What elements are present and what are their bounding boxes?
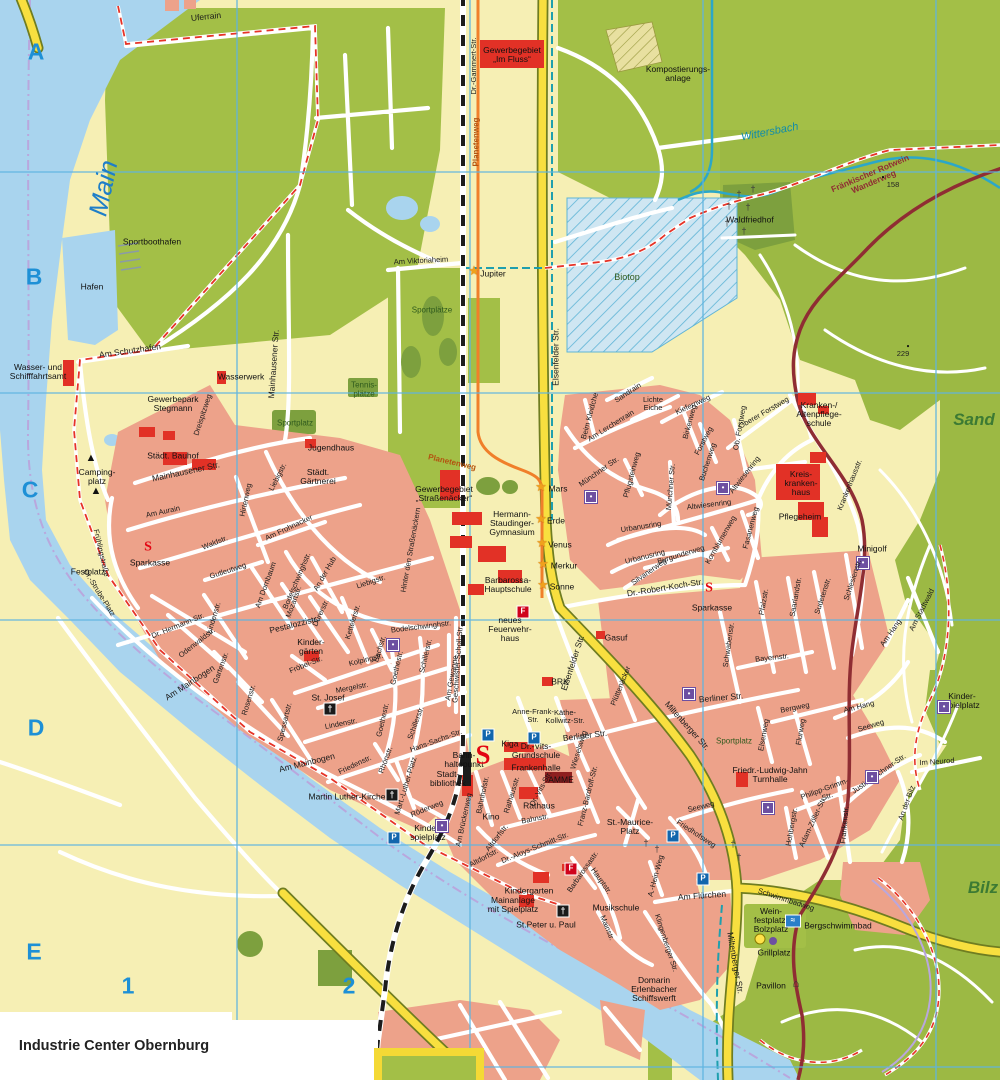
grid-col-2: 2 — [343, 974, 356, 999]
grid-row-b: B — [26, 265, 43, 290]
map-label: Barbarossastr. — [566, 850, 600, 894]
map-label: Urbanusring — [624, 548, 666, 566]
map-icon: † — [730, 840, 735, 850]
map-label: Schwimmbadweg — [757, 887, 815, 913]
area-sand-label: Sand — [953, 411, 995, 429]
map-label: Gewerbegebiet „Straßenäcker“ — [415, 485, 473, 503]
map-label: Uferrain — [190, 11, 221, 23]
map-label: Friedhofsweg — [675, 818, 717, 849]
map-label: Pflugsteinweg — [622, 451, 642, 498]
map-label: Minigolf — [857, 544, 886, 553]
map-label: Im Neurod — [919, 757, 954, 768]
sparkasse-main-icon: S — [475, 740, 490, 769]
map-label: Röderweg — [410, 799, 445, 819]
map-label: Altdorfstr. — [468, 847, 500, 869]
river-main-label: Main — [83, 158, 122, 219]
kindergarten-icon: • — [683, 688, 695, 700]
map-label: Am Flürchen — [678, 890, 727, 903]
sparkasse-icon: S — [705, 580, 713, 595]
map-label: Hinter den Straßenäckern — [400, 507, 423, 593]
map-label: Kindergarten — [505, 886, 554, 895]
map-icon: † — [745, 203, 750, 213]
parking-icon: P — [667, 830, 680, 843]
map-label: BRK — [551, 677, 568, 686]
map-label: Münchner Str. — [578, 455, 621, 488]
grillplatz-icon — [769, 937, 777, 945]
map-label: Am Mainbogen — [278, 752, 336, 775]
map-label: Rathaus — [523, 801, 555, 810]
map-label: Geschwister-Scholl-Str. — [451, 625, 465, 703]
map-label: Pestalozzistr. — [269, 614, 320, 635]
map-label: Altdorfstr. — [484, 823, 510, 853]
map-label: Kettelerstr. — [344, 604, 362, 641]
map-label: Klingenberger Str. — [653, 913, 679, 973]
city-map[interactable]: ABCDE12MainUferrainDr.-Gammert-Str.Gewer… — [0, 0, 1000, 1080]
map-label: An der Bilz — [897, 785, 917, 822]
map-label: Rathausstr. — [503, 776, 522, 815]
map-label: Fränkischer Rotwein Wanderweg — [810, 145, 935, 212]
map-label: Seeweg — [687, 800, 715, 814]
map-label: Miltenberger Str. — [663, 700, 712, 752]
map-label: Am Dornbaum — [254, 561, 278, 609]
map-label: Sportplatz — [277, 420, 313, 429]
map-label: Merkur — [551, 561, 577, 570]
map-label: Am Aurain — [145, 504, 181, 519]
map-label: Dr.-Strube-Platz — [81, 568, 116, 618]
map-label: Seeweg — [857, 718, 885, 734]
kindergarten-icon: • — [762, 802, 774, 814]
map-label: Burgunderweg — [656, 544, 705, 566]
map-label: Birkenweg — [682, 404, 699, 440]
minigolf-icon: • — [857, 557, 869, 569]
map-label: Kinder- spielplatz — [410, 824, 445, 842]
map-label: Sudetenstr. — [813, 577, 832, 616]
map-label: Sportboothafen — [123, 237, 181, 246]
map-label: Schillerstr. — [418, 638, 434, 674]
map-icon: ● — [881, 175, 884, 180]
map-label: Bayernstr. — [755, 652, 789, 664]
map-label: Mozartstr. — [285, 585, 304, 619]
map-label: Am Stadtwald — [908, 588, 936, 633]
grillplatz-icon — [755, 934, 766, 945]
map-label: Am Schutzhafen — [98, 342, 161, 360]
map-label: Oberer Forstweg — [738, 395, 791, 430]
map-label: Hafen — [81, 282, 104, 291]
map-label: Hohbergstr. — [785, 807, 800, 847]
map-label: Am Viktoriaheim — [394, 256, 449, 267]
campsite-icon: ▲ — [86, 453, 97, 465]
map-label: Kinder- gärten — [297, 638, 324, 656]
map-icon: † — [726, 202, 731, 212]
map-label: Fasanenweg — [742, 506, 761, 550]
map-label: Gasuf — [605, 633, 628, 642]
map-label: Frankenhalle — [511, 763, 560, 772]
map-label: Wein- festplatz, Bolzplatz — [754, 907, 789, 935]
map-label: Dr. Hermann-Str. — [150, 612, 205, 641]
map-label: Am Hang — [879, 618, 904, 648]
map-label: Wasserwerk — [218, 372, 264, 381]
map-label: Am Hang — [843, 699, 875, 714]
grid-row-c: C — [22, 478, 39, 503]
map-label: Am Brückenweg — [454, 792, 473, 847]
map-label: Schwabenstr. — [722, 622, 736, 668]
map-label: Pflegeheim — [779, 512, 822, 521]
map-label: Frühlingstraße — [92, 529, 111, 578]
map-label: Bergweg — [780, 701, 811, 715]
grid-row-a: A — [28, 40, 45, 65]
map-label: Plüttenäcker — [609, 665, 632, 707]
map-label: Erde — [547, 516, 565, 525]
campsite-icon: ▲ — [91, 486, 102, 498]
map-label: Waldfriedhof — [726, 215, 773, 224]
map-label: Am Mainbogen — [164, 664, 217, 703]
parking-icon: P — [388, 832, 401, 845]
map-label: Am Gewanne — [444, 655, 460, 701]
grid-row-d: D — [28, 716, 45, 741]
map-label: Rosenstr. — [240, 684, 257, 717]
map-label: Am Lerchenrain — [586, 409, 635, 444]
parking-icon: P — [697, 873, 710, 886]
map-label: Planetenweg — [473, 118, 482, 167]
map-label: Martin Luther-Kirche — [308, 792, 385, 801]
map-label: Camping- platz — [79, 468, 116, 486]
map-label: Städt. Gärtnerei — [300, 468, 335, 486]
map-label: Liebigstr. — [355, 574, 386, 591]
map-label: Schlesienstr. — [843, 559, 864, 602]
map-icon: ● — [906, 344, 909, 349]
planet-jupiter-icon: ★ — [468, 264, 480, 278]
map-label: Mainhausener Str. — [267, 329, 281, 398]
map-label: Kornblumenweg — [704, 515, 738, 566]
map-label: Pfalzstr. — [758, 588, 771, 616]
map-label: Elsenweg — [757, 718, 771, 751]
map-label: Berliner Str. — [698, 691, 743, 704]
map-label: Gewerbepark Stegmann — [147, 395, 198, 413]
map-label: Dreispitzweg — [193, 393, 214, 436]
map-label: Berliner Str. — [562, 729, 607, 744]
kindergarten-icon: • — [717, 482, 729, 494]
map-label: Mars — [549, 484, 568, 493]
map-label: Barbarossa- Hauptschule — [484, 576, 531, 594]
map-label: Franz-Bardroff-Str. — [577, 765, 600, 827]
map-label: Domarin Erlenbacher Schiffswerft — [631, 976, 677, 1004]
playground-icon: • — [938, 701, 950, 713]
map-label: Beim Kleidche — [580, 392, 600, 440]
map-label: Kiga — [501, 739, 518, 748]
map-label: Goethestr. — [389, 650, 405, 686]
map-label: Lichte Eiche — [643, 396, 663, 412]
map-label: Goethestr. — [375, 702, 391, 738]
map-label: Ob. Forstweg — [732, 405, 748, 451]
map-label: Grillplatz — [757, 948, 790, 957]
map-label: Bodelschwinghstr. — [281, 552, 312, 611]
map-label: St. Josef — [311, 693, 344, 702]
map-label: Hauptstr. — [589, 866, 613, 895]
map-label: neues Feuerwehr- haus — [488, 616, 531, 644]
map-label: Am Frohnacker — [264, 513, 314, 542]
map-label: Gartenstr. — [212, 651, 231, 685]
map-label: Lindenstr. — [324, 717, 357, 731]
kindergarten-icon: • — [387, 639, 399, 651]
playground-icon: • — [436, 820, 448, 832]
map-label: Mergelstr. — [335, 681, 369, 695]
parking-icon: P — [482, 729, 495, 742]
fire-station-icon: F — [565, 863, 578, 876]
map-label: Frankenstr. — [839, 806, 850, 844]
map-label: Tennis- plätze — [351, 381, 377, 398]
planet-merkur-icon: ★ — [537, 557, 549, 571]
map-label: Silvanerweg — [630, 557, 668, 587]
map-label: Buchenweg — [698, 442, 718, 482]
map-label: Hermann- Staudinger- Gymnasium — [489, 510, 534, 538]
map-icon: † — [736, 190, 741, 200]
map-label: Städt. Bauhof — [147, 451, 199, 460]
map-label: Kinder- spielplatz — [944, 692, 979, 710]
map-label: Justin-Kirchner-Str. — [851, 752, 908, 795]
map-label: Dr.-Vits- Grundschule — [512, 742, 560, 760]
map-label: Urbanusring — [620, 520, 662, 534]
map-label: Philipp-Grimm- Str. — [800, 777, 853, 809]
planet-venus-icon: ★ — [536, 536, 548, 550]
map-label: Altwiesenring — [728, 455, 762, 495]
map-icon: † — [654, 845, 659, 855]
map-label: Biotop — [614, 273, 640, 283]
map-label: Festplatz — [71, 567, 106, 576]
map-label: Kranken-/ Altenpflege- schule — [796, 401, 841, 429]
map-icon: † — [736, 853, 741, 863]
planet-erde-icon: ★ — [535, 512, 547, 526]
map-label: Wieselsweg — [569, 730, 588, 771]
map-label: Wittersbach — [740, 122, 799, 145]
map-label: Friedenstr. — [337, 754, 373, 776]
map-label: A.-Hein-Weg — [647, 854, 666, 897]
map-label: Forstweg — [693, 425, 715, 456]
sparkasse-icon: S — [144, 539, 152, 554]
map-label: AMME — [548, 775, 574, 784]
parking-icon: P — [528, 732, 541, 745]
map-label: Anne-Frank- Str. — [512, 708, 554, 724]
map-label: Dr.-Aloys-Schmitt-Str. — [500, 831, 569, 865]
map-label: Dr.-Vits-Str. — [528, 770, 553, 808]
map-label: Liebigstr. — [268, 462, 289, 492]
map-label: Planetenweg — [427, 453, 477, 472]
map-label: 158 — [887, 181, 900, 189]
map-label: Dürerstr. — [311, 598, 330, 627]
map-label: Adam-Zöller-Str. — [798, 796, 828, 849]
map-label: Jugendhaus — [308, 443, 354, 452]
area-bilz-label: Bilz — [968, 879, 998, 897]
map-icon: † — [741, 227, 746, 237]
map-label: Bodelschwinghstr. — [391, 619, 452, 634]
church-icon: † — [557, 905, 570, 918]
map-icon: † — [724, 219, 729, 229]
map-label: Münchner Str. — [665, 463, 677, 510]
map-label: Friedr.-Ludwig-Jahn Turnhalle — [732, 766, 807, 784]
map-label: Kiefernweg — [674, 393, 711, 416]
map-label: Bahnhofstr. — [475, 776, 491, 815]
map-label: Flurweg — [795, 718, 808, 746]
map-label: Schillerstr. — [406, 705, 425, 740]
kindergarten-icon: • — [585, 491, 597, 503]
map-label: Mainstr. — [598, 914, 615, 941]
kindergarten-icon: • — [866, 771, 878, 783]
inset-title: Industrie Center Obernburg — [19, 1039, 209, 1055]
map-label: Käthe- Kollwitz-Str. — [545, 709, 584, 725]
map-label: Krankenhausstr. — [836, 458, 864, 511]
map-label: Dr.-Robert-Koch-Str. — [626, 577, 703, 598]
map-label: Rhönstr. — [377, 745, 394, 774]
map-icon: † — [643, 839, 648, 849]
map-label: Sandrain — [613, 381, 643, 404]
map-label: Miltenberger Str. — [725, 931, 745, 994]
map-label: Stadt- bibliothek — [430, 770, 466, 788]
planet-mars-icon: ★ — [535, 480, 547, 494]
map-label: Fröbel-Str. — [288, 655, 323, 676]
church-icon: † — [386, 789, 399, 802]
map-label: Mainanlage mit Spielplatz — [488, 896, 539, 914]
map-label: Pavillon — [756, 981, 786, 990]
map-label: Kolpingstr. — [348, 652, 384, 668]
map-label: Jupiter — [480, 269, 506, 278]
map-label: Spessartstr. — [276, 702, 293, 742]
pavilion-icon: ⌂ — [793, 979, 800, 991]
map-icon: † — [750, 185, 755, 195]
map-label: Musikschule — [593, 903, 640, 912]
map-label: Elsenfelder Str. — [551, 328, 560, 386]
map-label: Venus — [548, 540, 572, 549]
map-labels-layer: ABCDE12MainUferrainDr.-Gammert-Str.Gewer… — [0, 0, 1000, 1080]
map-label: Bachstr. — [372, 635, 388, 663]
map-label: Bergschwimmbad — [804, 921, 872, 930]
map-label: Saarlandstr. — [789, 577, 804, 618]
map-label: St.Peter u. Paul — [516, 920, 576, 929]
map-label: Dr.-Gammert-Str. — [470, 37, 478, 94]
map-label: Odenwaldstr. — [177, 626, 216, 659]
map-label: Sportplatz — [716, 738, 752, 747]
map-label: Hirtenweg — [239, 483, 254, 518]
grid-row-e: E — [26, 940, 41, 965]
grid-col-1: 1 — [122, 974, 135, 999]
church-icon: † — [324, 703, 337, 716]
map-label: Bahn- haltepunkt — [444, 751, 483, 769]
map-label: Elsenfelder Str. — [560, 634, 587, 692]
gewerbegebiet-im-fluss: Gewerbegebiet „Im Fluss“ — [483, 46, 541, 64]
map-label: Mainhausener Str. — [151, 460, 220, 483]
map-label: An der Hub — [312, 556, 338, 593]
map-label: Mart.-Luther-Platz — [393, 756, 418, 816]
map-label: Sparkasse — [692, 603, 732, 612]
map-label: Bahnstr. — [521, 812, 550, 825]
map-label: Sparkasse — [130, 558, 170, 567]
map-label: Kreis- kranken- haus — [784, 470, 817, 498]
map-label: Altwiesenring — [686, 498, 731, 511]
map-label: Gutleutweg — [209, 561, 248, 580]
map-label: Sportplätze — [412, 307, 452, 316]
map-label: Sonne — [550, 582, 575, 591]
map-label: St.-Maurice- Platz — [607, 818, 653, 836]
map-label: Kino — [482, 812, 499, 821]
planet-sonne-icon: ★ — [537, 578, 549, 592]
map-label: Kompostierungs- anlage — [646, 65, 710, 83]
map-label: 229 — [897, 350, 910, 358]
map-label: Lindenstr. — [205, 601, 222, 634]
map-label: Wasser- und Schifffahrtsamt — [10, 363, 66, 381]
swimming-pool-icon: ≈ — [785, 915, 801, 928]
fire-station-icon: F — [517, 606, 530, 619]
map-label: Waldstr. — [201, 534, 229, 552]
map-label: Hans-Sachs-Str. — [409, 728, 463, 754]
